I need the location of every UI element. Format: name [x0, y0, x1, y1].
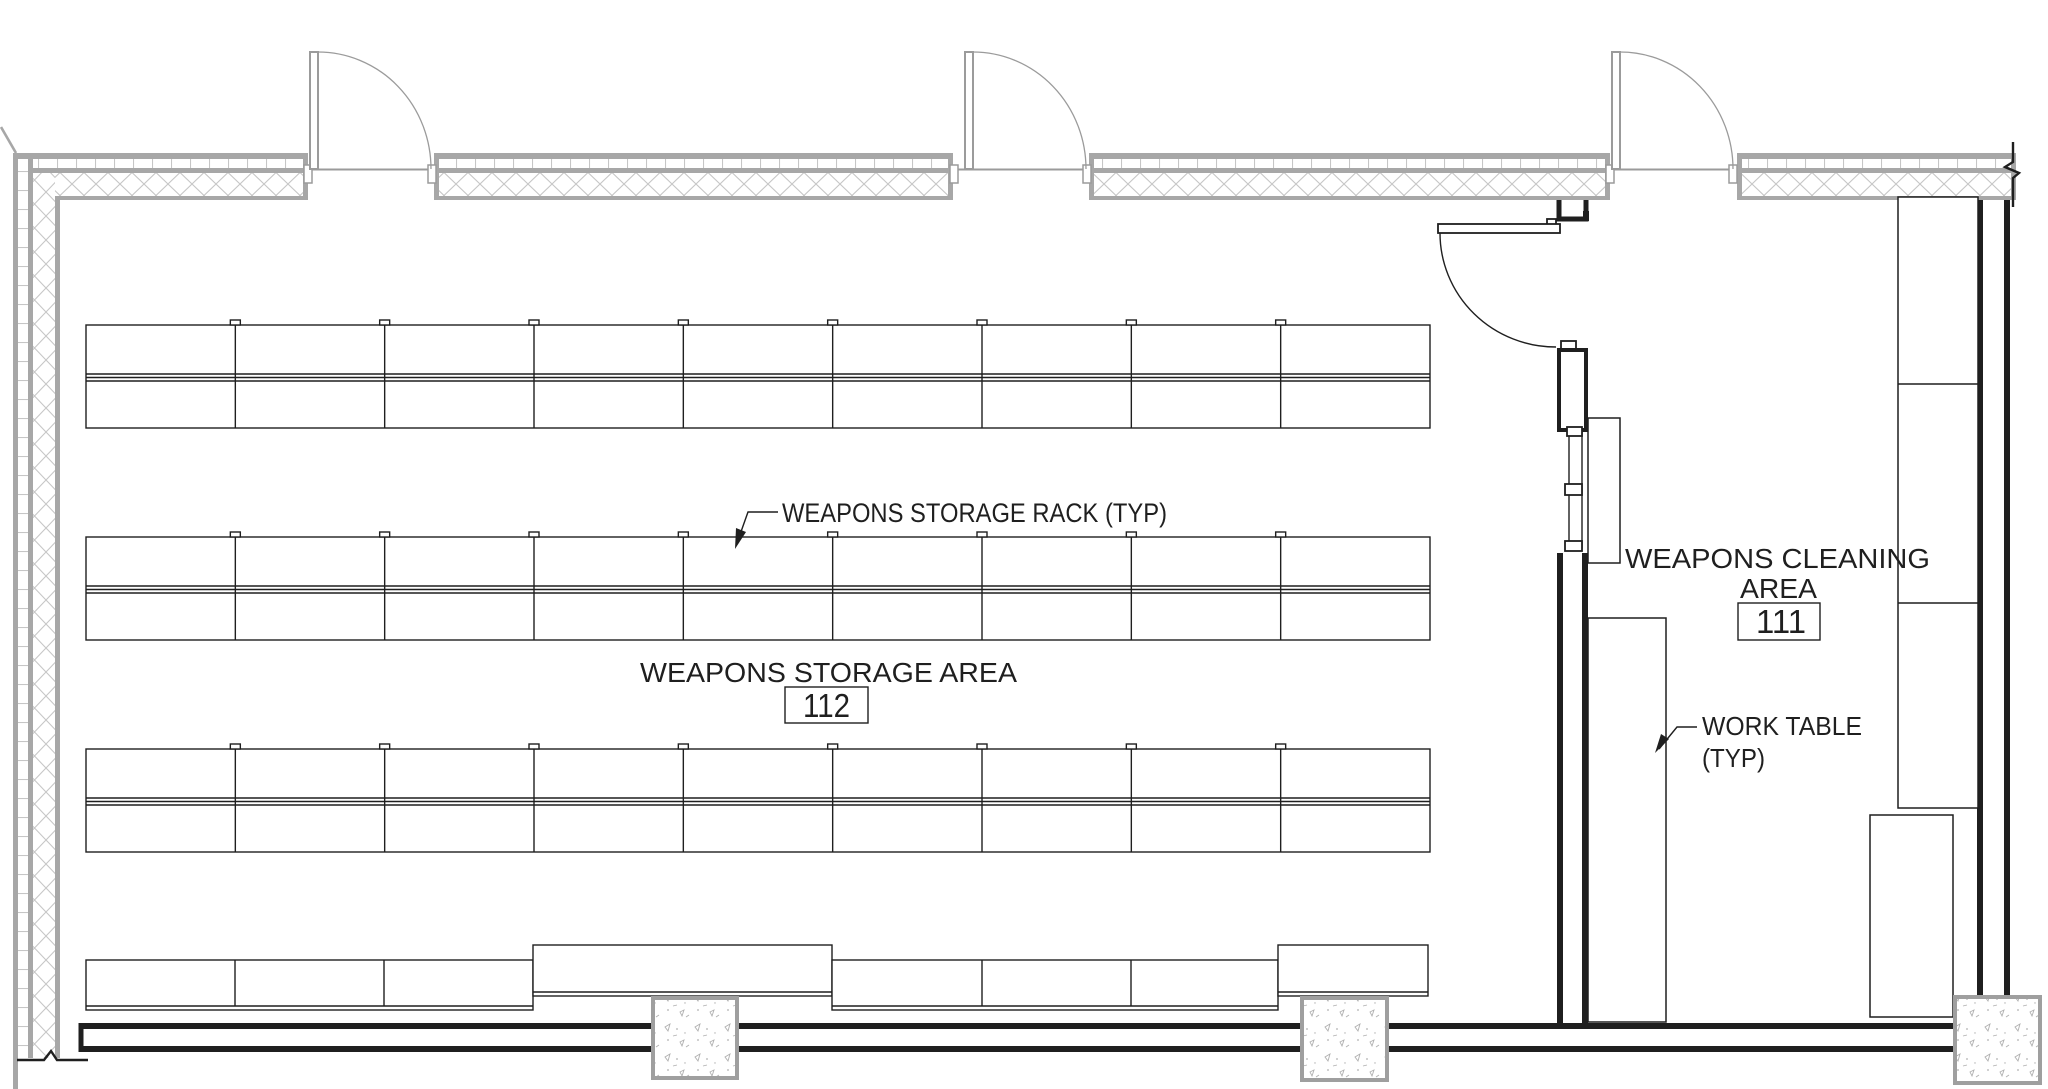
cleaning-room-label: WEAPONS CLEANING AREA 111 [1625, 543, 1930, 640]
bottom-wall [81, 1023, 1955, 1052]
storage-room-label: WEAPONS STORAGE AREA 112 [640, 657, 1017, 724]
rack-row-3 [86, 744, 1430, 852]
rack-callout-label: WEAPONS STORAGE RACK (TYP) [782, 498, 1167, 528]
door-2-left-jamb [950, 165, 958, 183]
interior-door-track [1565, 427, 1582, 551]
concrete-column-3 [1955, 997, 2040, 1083]
interior-door-leaf-closed [1559, 350, 1586, 430]
work-table-bottom-right [1870, 815, 1953, 1017]
break-symbol-top-left [1, 127, 16, 153]
exterior-wall-top-segment-a [13, 153, 308, 200]
rack-row-1 [86, 320, 1430, 428]
door-1-leaf [310, 52, 318, 169]
exterior-wall-left [13, 153, 60, 1089]
interior-door-head-frame [1559, 200, 1586, 219]
cleaning-room-name-line1: WEAPONS CLEANING [1625, 543, 1930, 574]
storage-room-number: 112 [803, 687, 850, 724]
interior-door-leaf-open [1438, 224, 1560, 233]
work-table-callout-line1: WORK TABLE [1702, 711, 1862, 741]
work-table-callout-line2: (TYP) [1702, 743, 1765, 773]
door-2-leaf [965, 52, 973, 169]
door-1-right-jamb [428, 165, 436, 183]
door-3-leaf [1612, 52, 1620, 169]
rack-row-bottom [86, 945, 1428, 1010]
door-3 [1606, 52, 1737, 183]
cleaning-room-number: 111 [1756, 603, 1806, 640]
door-1 [304, 52, 436, 183]
right-wall [1980, 200, 2007, 995]
door-2-swing-arc [973, 52, 1086, 169]
door-1-swing-arc [318, 52, 431, 169]
work-table-right-wall [1898, 197, 1978, 808]
exterior-wall-top-segment-d [1737, 153, 2016, 200]
floor-plan-drawing: WEAPONS STORAGE RACK (TYP) WEAPONS STORA… [0, 0, 2048, 1089]
partition-wall [1560, 553, 1585, 1026]
door-3-swing-arc [1620, 52, 1733, 169]
interior-door-swing-arc [1440, 233, 1556, 347]
door-2-right-jamb [1083, 165, 1091, 183]
concrete-column-1 [653, 998, 737, 1078]
floor-plan-canvas: WEAPONS STORAGE RACK (TYP) WEAPONS STORA… [0, 0, 2048, 1089]
exterior-wall-top-segment-c [1089, 153, 1610, 200]
rack-row-2 [86, 532, 1430, 640]
storage-room-name: WEAPONS STORAGE AREA [640, 657, 1017, 688]
interior-door [1438, 200, 1589, 551]
work-table-lower-partition [1588, 618, 1666, 1022]
work-table-callout: WORK TABLE (TYP) [1655, 711, 1862, 773]
door-2 [950, 52, 1091, 183]
interior-door-strike [1583, 211, 1589, 221]
concrete-column-2 [1302, 998, 1387, 1080]
work-table-upper-partition [1588, 418, 1620, 563]
cleaning-room-name-line2: AREA [1740, 573, 1817, 604]
exterior-wall-top-segment-b [434, 153, 953, 200]
